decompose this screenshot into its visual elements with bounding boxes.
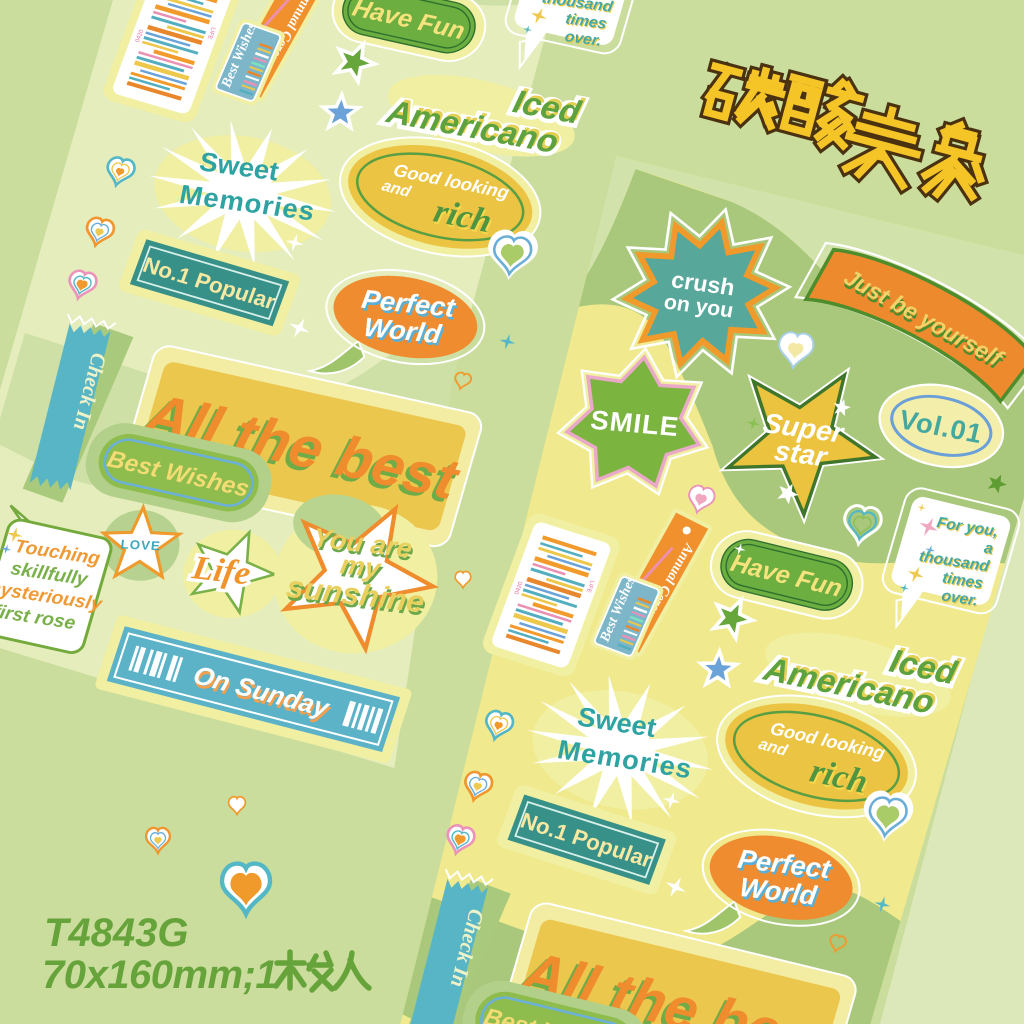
svg-text:70x160mm;1: 70x160mm;1: [42, 953, 277, 997]
svg-text:T4843G: T4843G: [44, 911, 189, 955]
